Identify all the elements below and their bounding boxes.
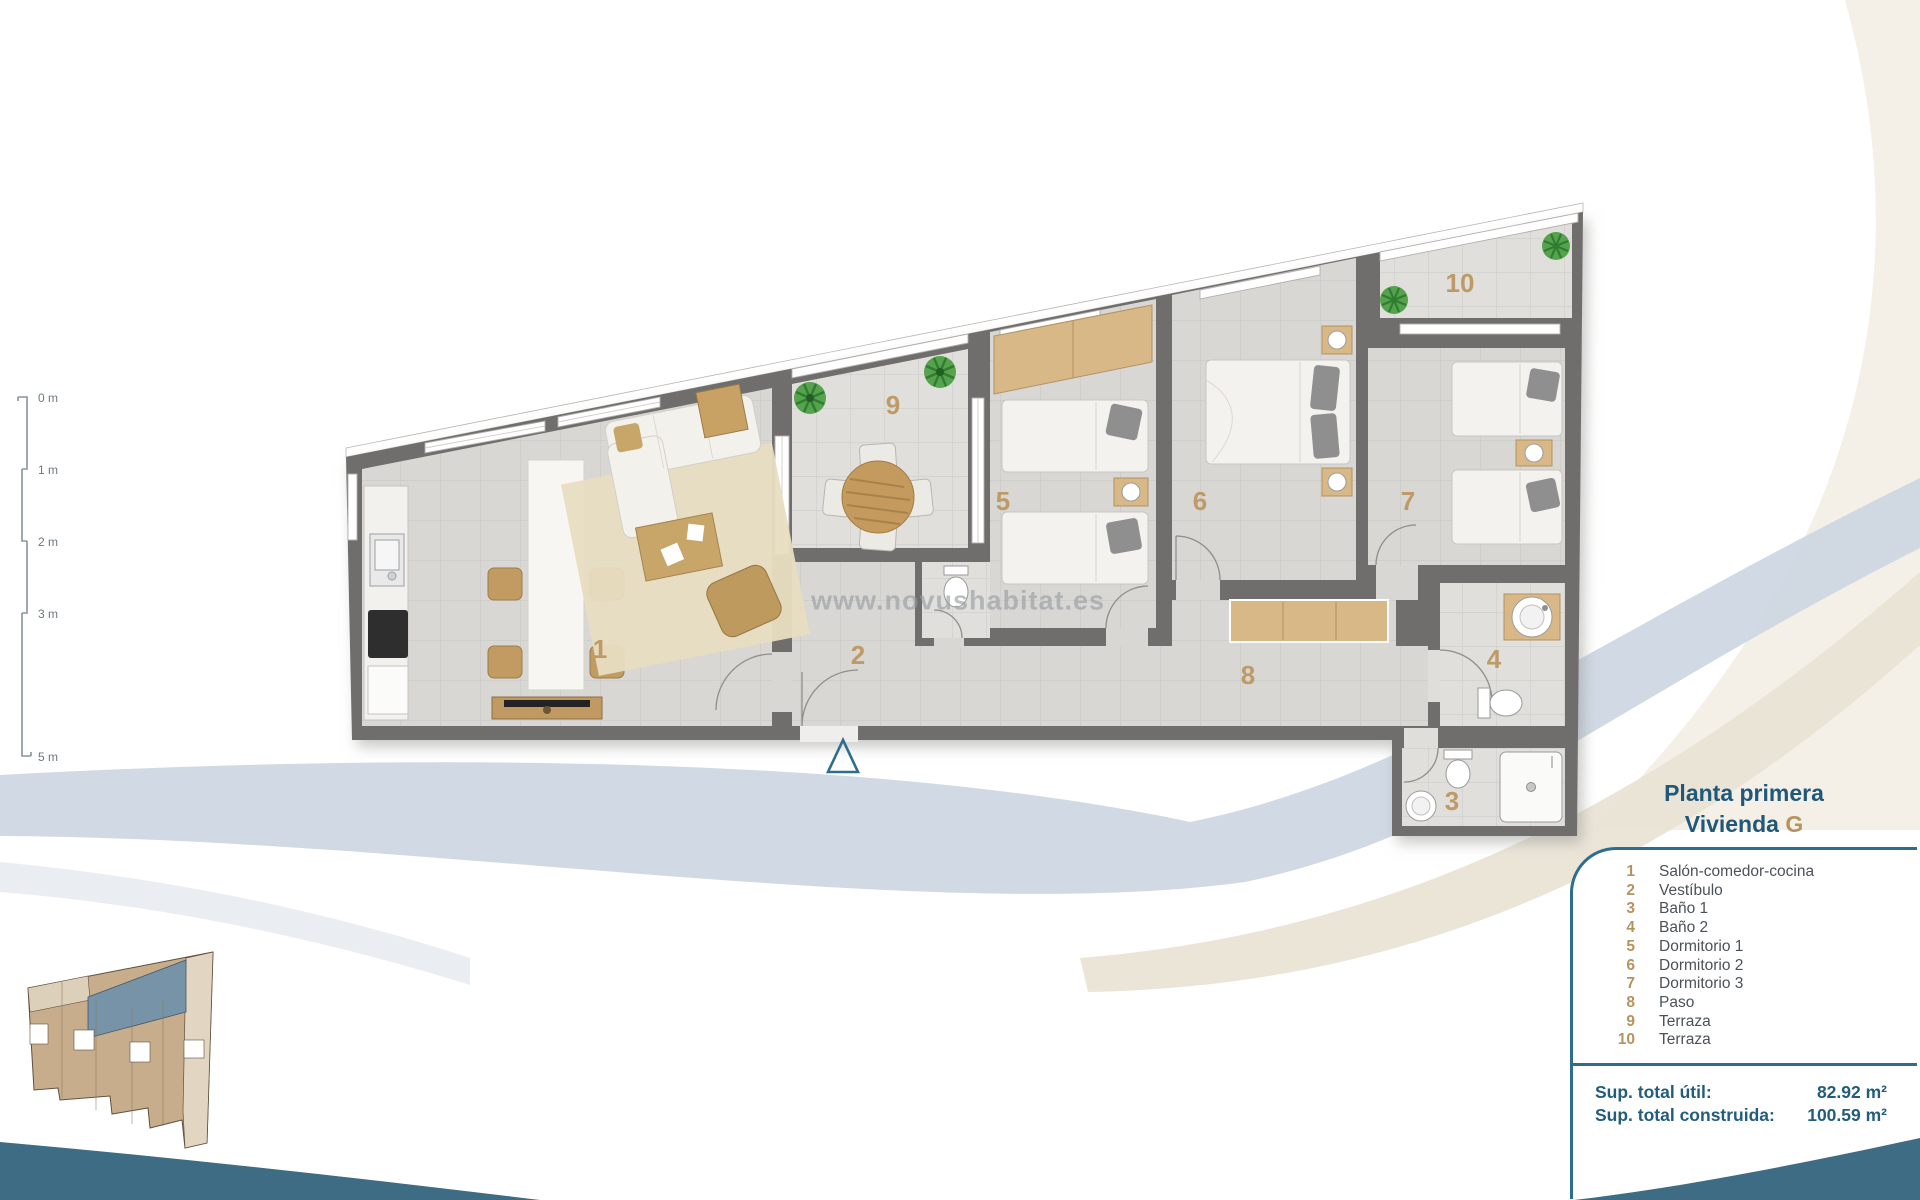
room-label-1: 1: [593, 634, 607, 664]
legend-item: 7Dormitorio 3: [1573, 975, 1917, 994]
legend-item-label: Baño 1: [1659, 900, 1708, 919]
pillow: [1105, 403, 1143, 441]
room-label-6: 6: [1193, 486, 1207, 516]
building: [346, 203, 1583, 836]
plant-icon: [794, 382, 826, 414]
sink-basin: [375, 540, 399, 570]
legend-item-num: 6: [1573, 957, 1659, 976]
closet: [1230, 600, 1388, 642]
shower-drain: [1527, 783, 1536, 792]
legend-item: 4Baño 2: [1573, 919, 1917, 938]
bano2-door-opening: [1428, 650, 1440, 702]
room-paso-floor: [915, 646, 1428, 726]
legend-item-num: 10: [1573, 1031, 1659, 1050]
legend-item-label: Dormitorio 2: [1659, 957, 1743, 976]
side-table: [696, 384, 748, 438]
teal-wave: [1568, 1136, 1920, 1200]
legend-item: 6Dormitorio 2: [1573, 957, 1917, 976]
legend-item: 5Dormitorio 1: [1573, 938, 1917, 957]
lamp-icon: [1122, 483, 1140, 501]
legend-item: 8Paso: [1573, 994, 1917, 1013]
toilet-icon: [1446, 760, 1470, 788]
room-label-10: 10: [1446, 268, 1475, 298]
room-label-8: 8: [1241, 660, 1255, 690]
console-knob: [543, 706, 551, 714]
room-label-4: 4: [1487, 644, 1502, 674]
lamp-icon: [1328, 331, 1346, 349]
legend-totals: Sup. total útil: 82.92 m² Sup. total con…: [1573, 1063, 1917, 1127]
wc-door-opening: [934, 638, 964, 648]
room-label-3: 3: [1445, 786, 1459, 816]
pillow: [1525, 477, 1561, 513]
scale-bar: [18, 397, 31, 756]
legend-item-num: 1: [1573, 863, 1659, 882]
scale-label-2m: 2 m: [38, 535, 58, 549]
legend-item-num: 9: [1573, 1013, 1659, 1032]
bano1-door-opening: [1404, 728, 1438, 748]
legend-item: 2Vestíbulo: [1573, 882, 1917, 901]
scale-label-3m: 3 m: [38, 607, 58, 621]
room-label-2: 2: [851, 640, 865, 670]
dorm2-door-opening: [1176, 580, 1220, 600]
lamp-icon: [1328, 473, 1346, 491]
oven-icon: [368, 666, 408, 714]
teal-wedge: [0, 1142, 540, 1200]
total-construida-label: Sup. total construida:: [1595, 1104, 1775, 1127]
room-label-9: 9: [886, 390, 900, 420]
sink-basin: [1412, 797, 1430, 815]
total-util-value: 82.92 m²: [1817, 1081, 1887, 1104]
legend-item: 1Salón-comedor-cocina: [1573, 863, 1917, 882]
legend-item: 9Terraza: [1573, 1013, 1917, 1032]
sink-drain: [388, 572, 396, 580]
tv-icon: [504, 700, 590, 707]
legend-item: 3Baño 1: [1573, 900, 1917, 919]
room-label-7: 7: [1401, 486, 1415, 516]
legend-item-num: 3: [1573, 900, 1659, 919]
single-bed: [1452, 362, 1562, 436]
plant-icon: [1542, 232, 1570, 260]
paso-closet: [1230, 600, 1388, 642]
plant-icon: [1380, 286, 1408, 314]
faucet-dot: [1542, 605, 1548, 611]
single-bed: [1452, 470, 1562, 544]
legend-title-line2: Vivienda G: [1570, 809, 1918, 840]
legend-unit-letter: G: [1785, 811, 1803, 837]
pillow: [1310, 365, 1340, 411]
legend-title: Planta primera Vivienda G: [1570, 778, 1918, 840]
dormitorio1-furniture: [994, 305, 1152, 584]
floor-plan-page: { "watermark": "www.novushabitat.es", "s…: [0, 0, 1920, 1200]
sink-basin: [1520, 605, 1544, 629]
entry-marker-icon: [828, 740, 858, 772]
swoosh-gray-bottom-left: [0, 862, 470, 985]
total-util-label: Sup. total útil:: [1595, 1081, 1712, 1104]
watermark: www.novushabitat.es: [811, 586, 1105, 617]
pillow: [1105, 517, 1142, 554]
scale-label-5m: 5 m: [38, 750, 58, 764]
total-construida-row: Sup. total construida: 100.59 m²: [1595, 1104, 1887, 1127]
dorm1-door-opening: [1106, 628, 1148, 646]
total-construida-value: 100.59 m²: [1807, 1104, 1887, 1127]
mini-site-plan: [28, 952, 213, 1148]
scale-label-0m: 0 m: [38, 391, 58, 405]
scale-bar-labels: 0 m 1 m 2 m 3 m 5 m: [38, 391, 58, 764]
legend-item-label: Terraza: [1659, 1031, 1711, 1050]
entry-door-opening: [800, 726, 858, 742]
room-label-5: 5: [996, 486, 1010, 516]
toilet-tank: [944, 566, 968, 575]
legend-item: 10Terraza: [1573, 1031, 1917, 1050]
single-bed: [1002, 400, 1148, 472]
sofa-pillow: [613, 422, 644, 453]
total-util-row: Sup. total útil: 82.92 m²: [1595, 1081, 1887, 1104]
plant-icon: [924, 356, 956, 388]
salon-door-opening: [772, 652, 792, 712]
dorm3-door-opening: [1376, 565, 1418, 600]
legend-title-prefix: Vivienda: [1685, 811, 1779, 837]
cooktop-icon: [368, 610, 408, 658]
legend-title-line1: Planta primera: [1570, 778, 1918, 809]
pillow: [1310, 413, 1340, 459]
legend-item-label: Terraza: [1659, 1013, 1711, 1032]
single-bed: [1002, 512, 1148, 584]
legend-item-num: 5: [1573, 938, 1659, 957]
lamp-icon: [1525, 444, 1543, 462]
toilet-icon: [1490, 690, 1522, 716]
toilet-tank: [1478, 688, 1490, 718]
pillow: [1526, 368, 1561, 403]
dorm3-window: [1400, 324, 1560, 334]
kitchen-window: [348, 474, 357, 540]
legend-item-label: Dormitorio 1: [1659, 938, 1743, 957]
legend-list: 1Salón-comedor-cocina 2Vestíbulo 3Baño 1…: [1573, 850, 1917, 1063]
legend-item-label: Baño 2: [1659, 919, 1708, 938]
legend-item-num: 4: [1573, 919, 1659, 938]
scale-label-1m: 1 m: [38, 463, 58, 477]
legend-item-label: Salón-comedor-cocina: [1659, 863, 1814, 882]
legend-item-label: Dormitorio 3: [1659, 975, 1743, 994]
legend-item-num: 8: [1573, 994, 1659, 1013]
legend-item-label: Vestíbulo: [1659, 882, 1723, 901]
toilet-tank: [1444, 750, 1472, 759]
legend-item-num: 2: [1573, 882, 1659, 901]
legend-item-label: Paso: [1659, 994, 1694, 1013]
legend-item-num: 7: [1573, 975, 1659, 994]
